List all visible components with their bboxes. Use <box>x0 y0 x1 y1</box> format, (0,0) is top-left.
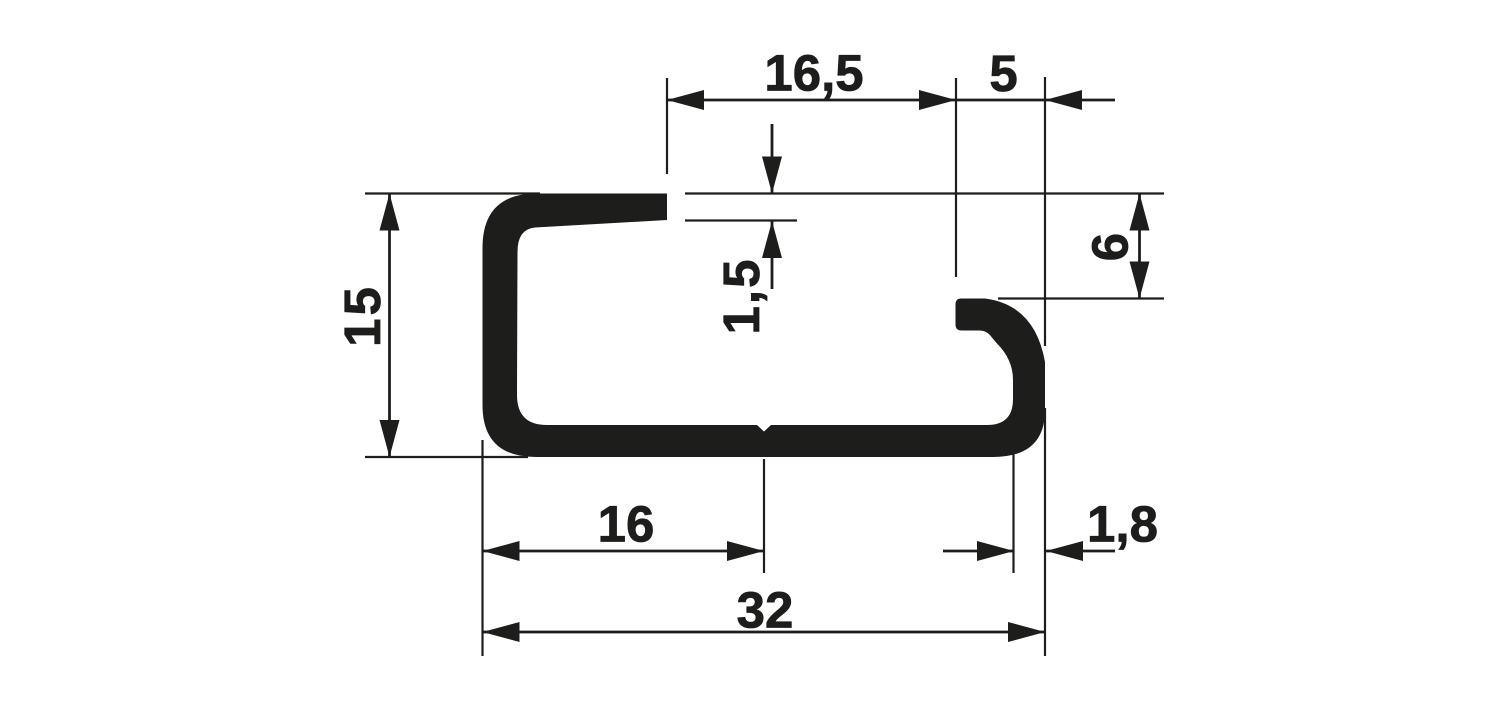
svg-text:1,5: 1,5 <box>713 258 770 335</box>
svg-text:6: 6 <box>1082 233 1139 261</box>
svg-text:5: 5 <box>989 45 1017 102</box>
svg-text:16: 16 <box>598 496 655 553</box>
svg-text:1,8: 1,8 <box>1087 496 1158 553</box>
svg-text:16,5: 16,5 <box>764 45 863 102</box>
svg-text:15: 15 <box>334 284 391 347</box>
svg-text:32: 32 <box>737 582 794 639</box>
